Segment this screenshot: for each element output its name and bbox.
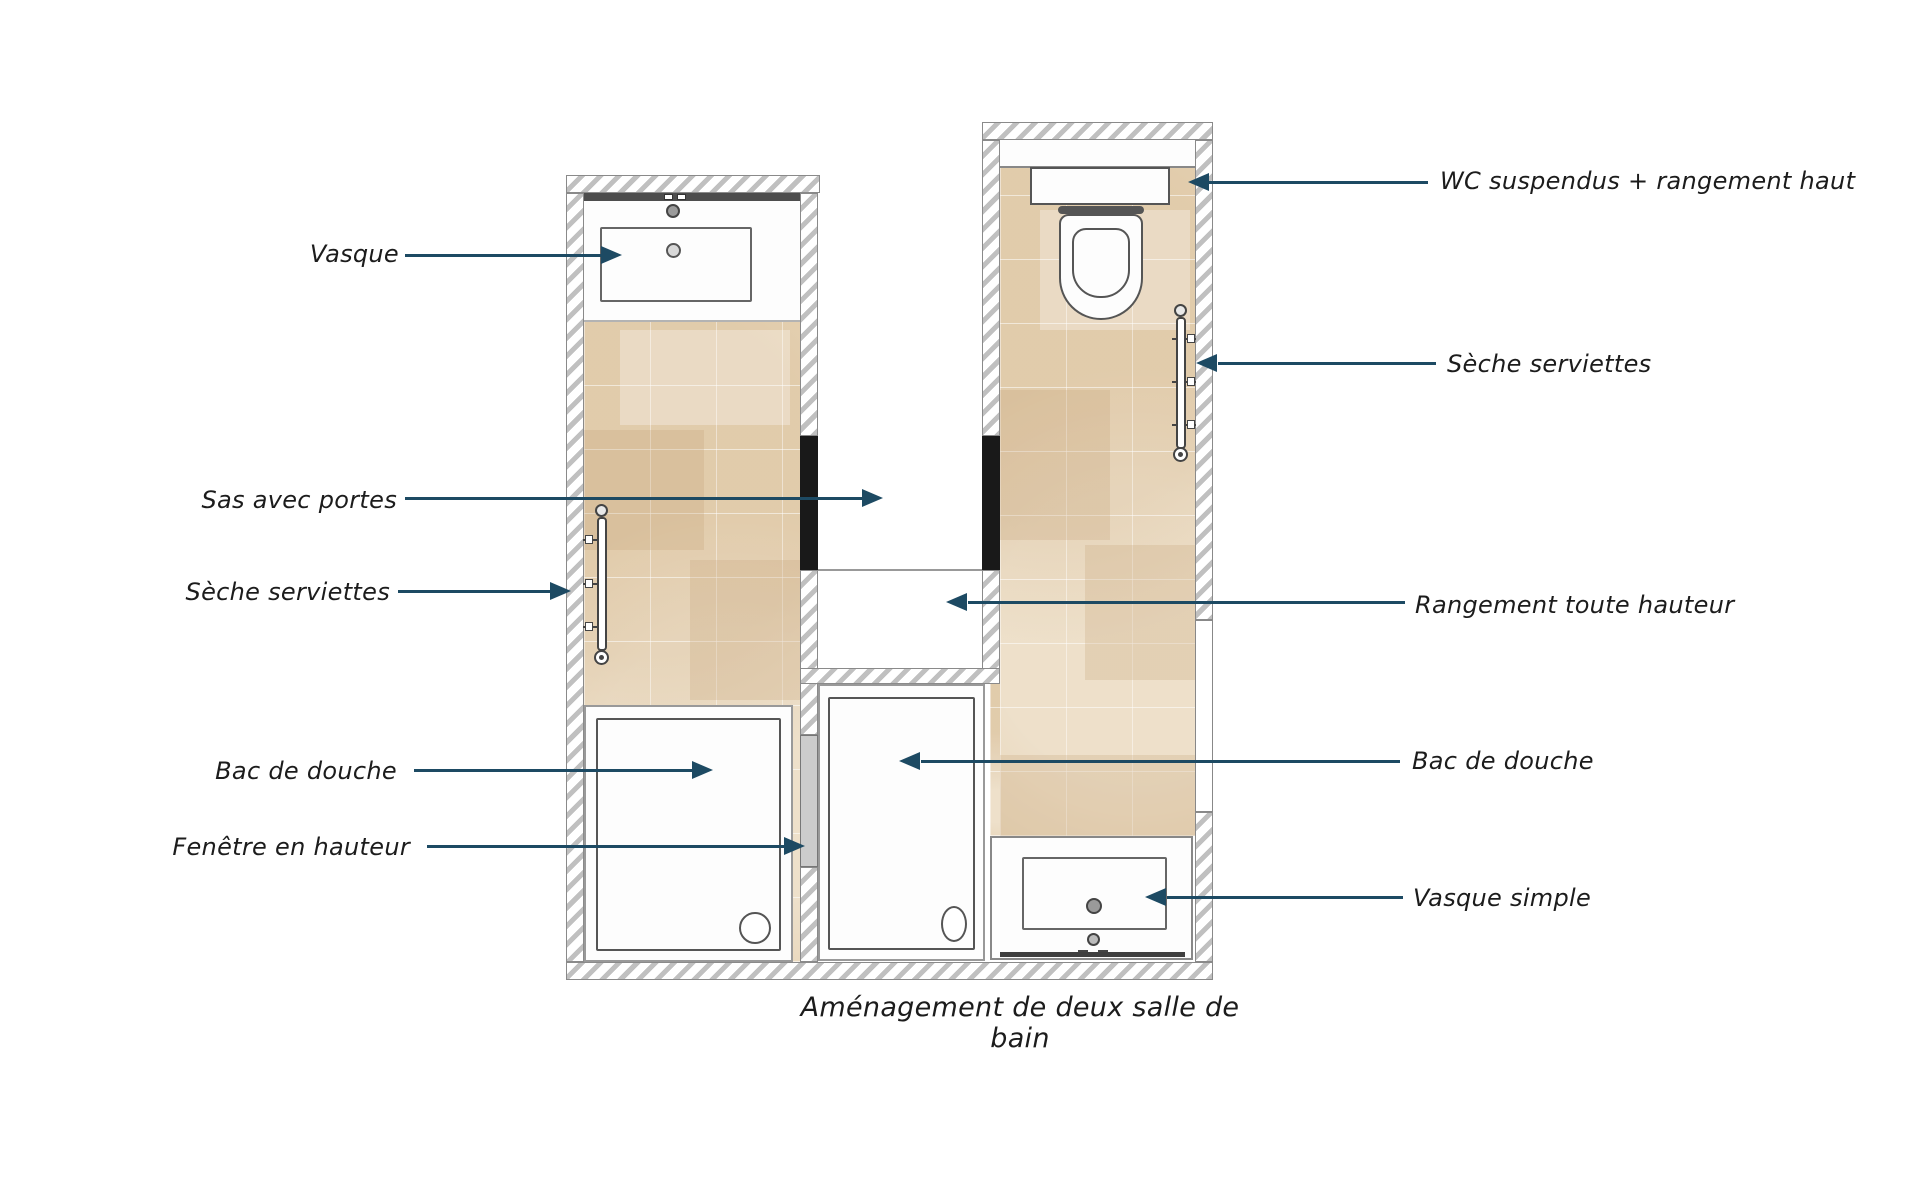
- arrow-vasque-simple: [1167, 896, 1403, 899]
- towel-radiator-left-mount: [585, 579, 593, 588]
- towel-radiator-right-bar: [1176, 317, 1186, 449]
- counter-handle: [664, 194, 673, 200]
- wall-right-bathroom-left-lower: [982, 570, 1000, 684]
- annotation-rangement-toute-hauteur: Rangement toute hauteur: [1415, 591, 1734, 619]
- counter-edge-bar: [584, 193, 800, 201]
- radiator-valve-icon: [1174, 304, 1187, 317]
- arrowhead-seche-serviettes-gauche: [550, 582, 571, 600]
- arrow-seche-serviettes-gauche: [398, 590, 550, 593]
- annotation-sas-avec-portes: Sas avec portes: [201, 486, 397, 514]
- towel-radiator-left-mount: [585, 622, 593, 631]
- wall-left-bathroom-top: [566, 175, 820, 193]
- arrowhead-vasque: [601, 246, 622, 264]
- arrowhead-vasque-simple: [1145, 888, 1166, 906]
- sas-threshold-line: [818, 569, 982, 571]
- arrowhead-rangement-toute-hauteur: [946, 593, 967, 611]
- toilet-seat-ring: [1072, 228, 1130, 298]
- arrow-seche-serviettes-droite: [1218, 362, 1436, 365]
- towel-radiator-right-mount: [1187, 334, 1195, 343]
- annotation-vasque-simple: Vasque simple: [1413, 884, 1591, 912]
- vanity-drain-icon: [1087, 933, 1100, 946]
- arrowhead-wc-suspendus: [1188, 173, 1209, 191]
- faucet-icon: [1086, 898, 1102, 914]
- wall-left-bathroom-right-upper: [800, 193, 818, 436]
- shower-drain-icon: [941, 906, 967, 942]
- radiator-valve-dot: [599, 655, 604, 660]
- towel-radiator-right-mount: [1187, 377, 1195, 386]
- tile-shade: [690, 560, 800, 700]
- arrowhead-bac-de-douche-droite: [899, 752, 920, 770]
- wall-storage-bottom: [800, 668, 1000, 684]
- arrow-wc-suspendus: [1208, 181, 1428, 184]
- tile-shade: [1085, 545, 1195, 680]
- annotation-bac-de-douche-droite: Bac de douche: [1412, 747, 1594, 775]
- wall-right-bathroom-right-upper: [1195, 140, 1213, 620]
- arrow-vasque: [405, 254, 601, 257]
- wall-bottom: [566, 962, 1213, 980]
- towel-radiator-left-mount: [585, 535, 593, 544]
- tile-shade: [1000, 755, 1195, 836]
- arrowhead-seche-serviettes-droite: [1196, 354, 1217, 372]
- floor-plan-canvas: Vasque WC suspendus + rangement haut Sèc…: [0, 0, 1920, 1194]
- sink-basin-left: [600, 227, 752, 302]
- wall-right-bathroom-left-upper: [982, 140, 1000, 436]
- sas-door-left: [800, 436, 818, 570]
- wall-right-bathroom-top: [982, 122, 1213, 140]
- annotation-vasque: Vasque: [310, 240, 399, 268]
- arrow-bac-de-douche-droite: [921, 760, 1400, 763]
- arrowhead-bac-de-douche-gauche: [692, 761, 713, 779]
- sas-door-right: [982, 436, 1000, 570]
- arrow-bac-de-douche-gauche: [414, 769, 692, 772]
- arrowhead-sas-avec-portes: [862, 489, 883, 507]
- plan-caption: Aménagement de deux salle de bain: [790, 992, 1250, 1054]
- wall-left-bathroom-right-lower: [800, 867, 818, 962]
- radiator-valve-icon: [595, 504, 608, 517]
- high-storage-band: [1000, 140, 1195, 168]
- annotation-bac-de-douche-gauche: Bac de douche: [215, 757, 397, 785]
- counter-handle: [677, 194, 686, 200]
- wall-right-bathroom-right-lower: [1195, 812, 1213, 962]
- wc-cistern: [1030, 167, 1170, 205]
- right-wall-opening: [1195, 620, 1213, 812]
- arrow-fenetre-en-hauteur: [427, 845, 784, 848]
- arrowhead-fenetre-en-hauteur: [784, 837, 805, 855]
- arrow-sas-avec-portes: [405, 497, 862, 500]
- annotation-fenetre-en-hauteur: Fenêtre en hauteur: [172, 833, 410, 861]
- wc-seat-hinge: [1058, 206, 1144, 214]
- annotation-seche-serviettes-gauche: Sèche serviettes: [186, 578, 390, 606]
- vanity-edge-line: [1000, 952, 1185, 957]
- arrow-rangement-toute-hauteur: [968, 601, 1405, 604]
- annotation-wc-suspendus: WC suspendus + rangement haut: [1440, 167, 1855, 195]
- towel-radiator-right-mount: [1187, 420, 1195, 429]
- tile-shade: [1000, 390, 1110, 540]
- wall-left-bathroom-right-middle: [800, 570, 818, 735]
- tile-shade: [620, 330, 790, 425]
- shower-drain-icon: [739, 912, 771, 944]
- sink-drain-icon: [666, 243, 681, 258]
- faucet-icon: [666, 204, 680, 218]
- annotation-seche-serviettes-droite: Sèche serviettes: [1447, 350, 1651, 378]
- towel-radiator-left-bar: [597, 517, 607, 651]
- radiator-valve-dot: [1178, 452, 1183, 457]
